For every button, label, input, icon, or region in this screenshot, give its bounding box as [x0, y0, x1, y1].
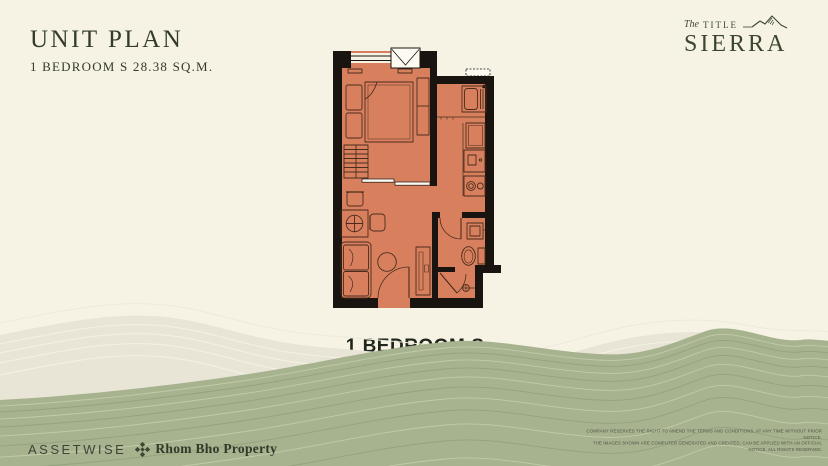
disclaimer-line1: COMPANY RESERVES THE RIGHT TO AMEND THE …	[584, 429, 822, 442]
disclaimer-line2: THE IMAGES SHOWN ARE COMPUTER GENERATED …	[584, 441, 822, 454]
mountain-icon	[742, 14, 788, 30]
assetwise-logo: ASSETWISE	[28, 442, 126, 457]
footer-logos: ASSETWISE Rhom Bho Property	[28, 441, 277, 457]
slide-canvas: UNIT PLAN 1 BEDROOM S 28.38 SQ.M. The TI…	[0, 0, 828, 466]
brand-topline: The TITLE	[684, 14, 802, 30]
rhombho-name: Rhom Bho Property	[155, 441, 277, 457]
page-subtitle: 1 BEDROOM S 28.38 SQ.M.	[30, 59, 213, 75]
header: UNIT PLAN 1 BEDROOM S 28.38 SQ.M.	[30, 26, 213, 75]
bedroom-window	[351, 53, 391, 63]
disclaimer: COMPANY RESERVES THE RIGHT TO AMEND THE …	[584, 429, 822, 454]
floor-plan	[328, 40, 503, 310]
brand-title-word: TITLE	[703, 20, 738, 30]
ac-vent-box	[391, 48, 420, 68]
page-title: UNIT PLAN	[30, 26, 213, 54]
brand-the: The	[684, 19, 699, 30]
diamond-cluster-icon	[135, 442, 150, 457]
rhombho-logo: Rhom Bho Property	[135, 441, 277, 457]
brand-logo: The TITLE SIERRA	[684, 14, 802, 58]
brand-name: SIERRA	[684, 31, 802, 58]
